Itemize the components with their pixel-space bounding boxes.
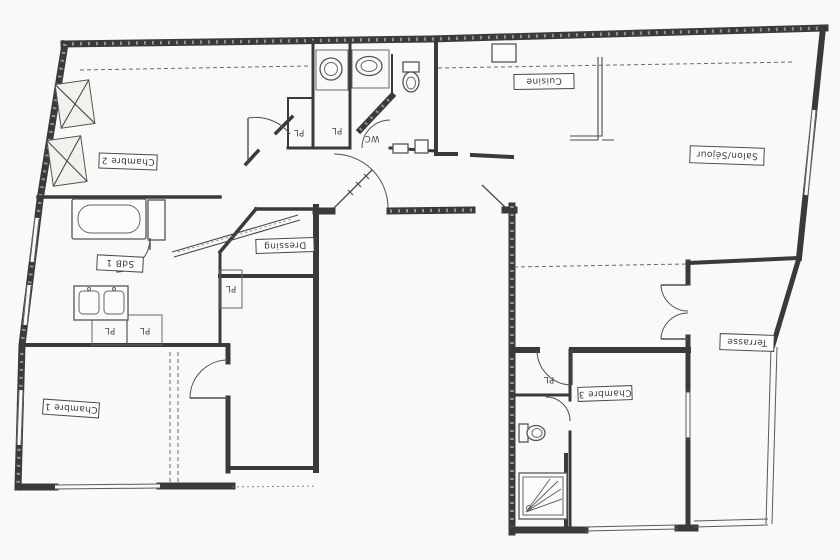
svg-text:PL: PL bbox=[105, 325, 115, 335]
room-label-text: Chambre 2 bbox=[101, 155, 155, 167]
closet-label: PL bbox=[544, 374, 554, 384]
room-label-salon-sejour: Salon/Séjour bbox=[690, 146, 765, 166]
svg-text:PL: PL bbox=[332, 125, 342, 135]
closet-label: PL bbox=[226, 283, 236, 293]
room-label-text: Salon/Séjour bbox=[696, 148, 758, 161]
toilet-icon-sdb2 bbox=[519, 424, 545, 442]
fixtures bbox=[72, 50, 567, 519]
washbasin-icon bbox=[352, 50, 389, 88]
closet-label: PL bbox=[294, 127, 304, 137]
room-label-sdb-1: SdB 1 bbox=[97, 255, 144, 272]
washing-machine-icon bbox=[316, 50, 348, 90]
room-label-dressing: Dressing bbox=[256, 237, 314, 253]
floor-plan-svg: Chambre 2 Cuisine Salon/Séjour SdB 1 Dre… bbox=[0, 0, 840, 560]
room-labels: Chambre 2 Cuisine Salon/Séjour SdB 1 Dre… bbox=[43, 73, 775, 417]
shower-icon bbox=[519, 473, 567, 519]
room-label-wc: WC bbox=[365, 133, 380, 143]
windows bbox=[17, 110, 816, 531]
closet-label: PL bbox=[105, 325, 115, 335]
double-washbasin-icon bbox=[74, 286, 128, 320]
interior-walls bbox=[22, 40, 688, 530]
closet-label: PL bbox=[332, 125, 342, 135]
room-label-chambre-3: Chambre 3 bbox=[578, 386, 632, 402]
room-label-text: WC bbox=[365, 133, 380, 143]
svg-text:PL: PL bbox=[544, 374, 554, 384]
room-label-text: Chambre 3 bbox=[578, 387, 632, 399]
bathtub-icon bbox=[72, 199, 146, 239]
outer-walls bbox=[18, 28, 825, 532]
room-label-cuisine: Cuisine bbox=[514, 73, 574, 89]
toilet-icon-wc bbox=[403, 62, 419, 92]
scanned-floor-plan: Chambre 2 Cuisine Salon/Séjour SdB 1 Dre… bbox=[0, 0, 840, 560]
room-label-chambre-2: Chambre 2 bbox=[99, 153, 157, 170]
room-label-terrasse: Terrasse bbox=[720, 334, 775, 352]
svg-text:PL: PL bbox=[226, 283, 236, 293]
room-label-text: Dressing bbox=[264, 239, 307, 250]
closet-label: PL bbox=[140, 325, 150, 335]
room-label-text: Cuisine bbox=[526, 75, 562, 86]
room-label-chambre-1: Chambre 1 bbox=[43, 399, 100, 418]
door-swings bbox=[116, 117, 688, 421]
room-label-text: Terrasse bbox=[727, 336, 769, 347]
svg-text:PL: PL bbox=[294, 127, 304, 137]
room-label-text: SdB 1 bbox=[106, 257, 135, 268]
svg-text:PL: PL bbox=[140, 325, 150, 335]
